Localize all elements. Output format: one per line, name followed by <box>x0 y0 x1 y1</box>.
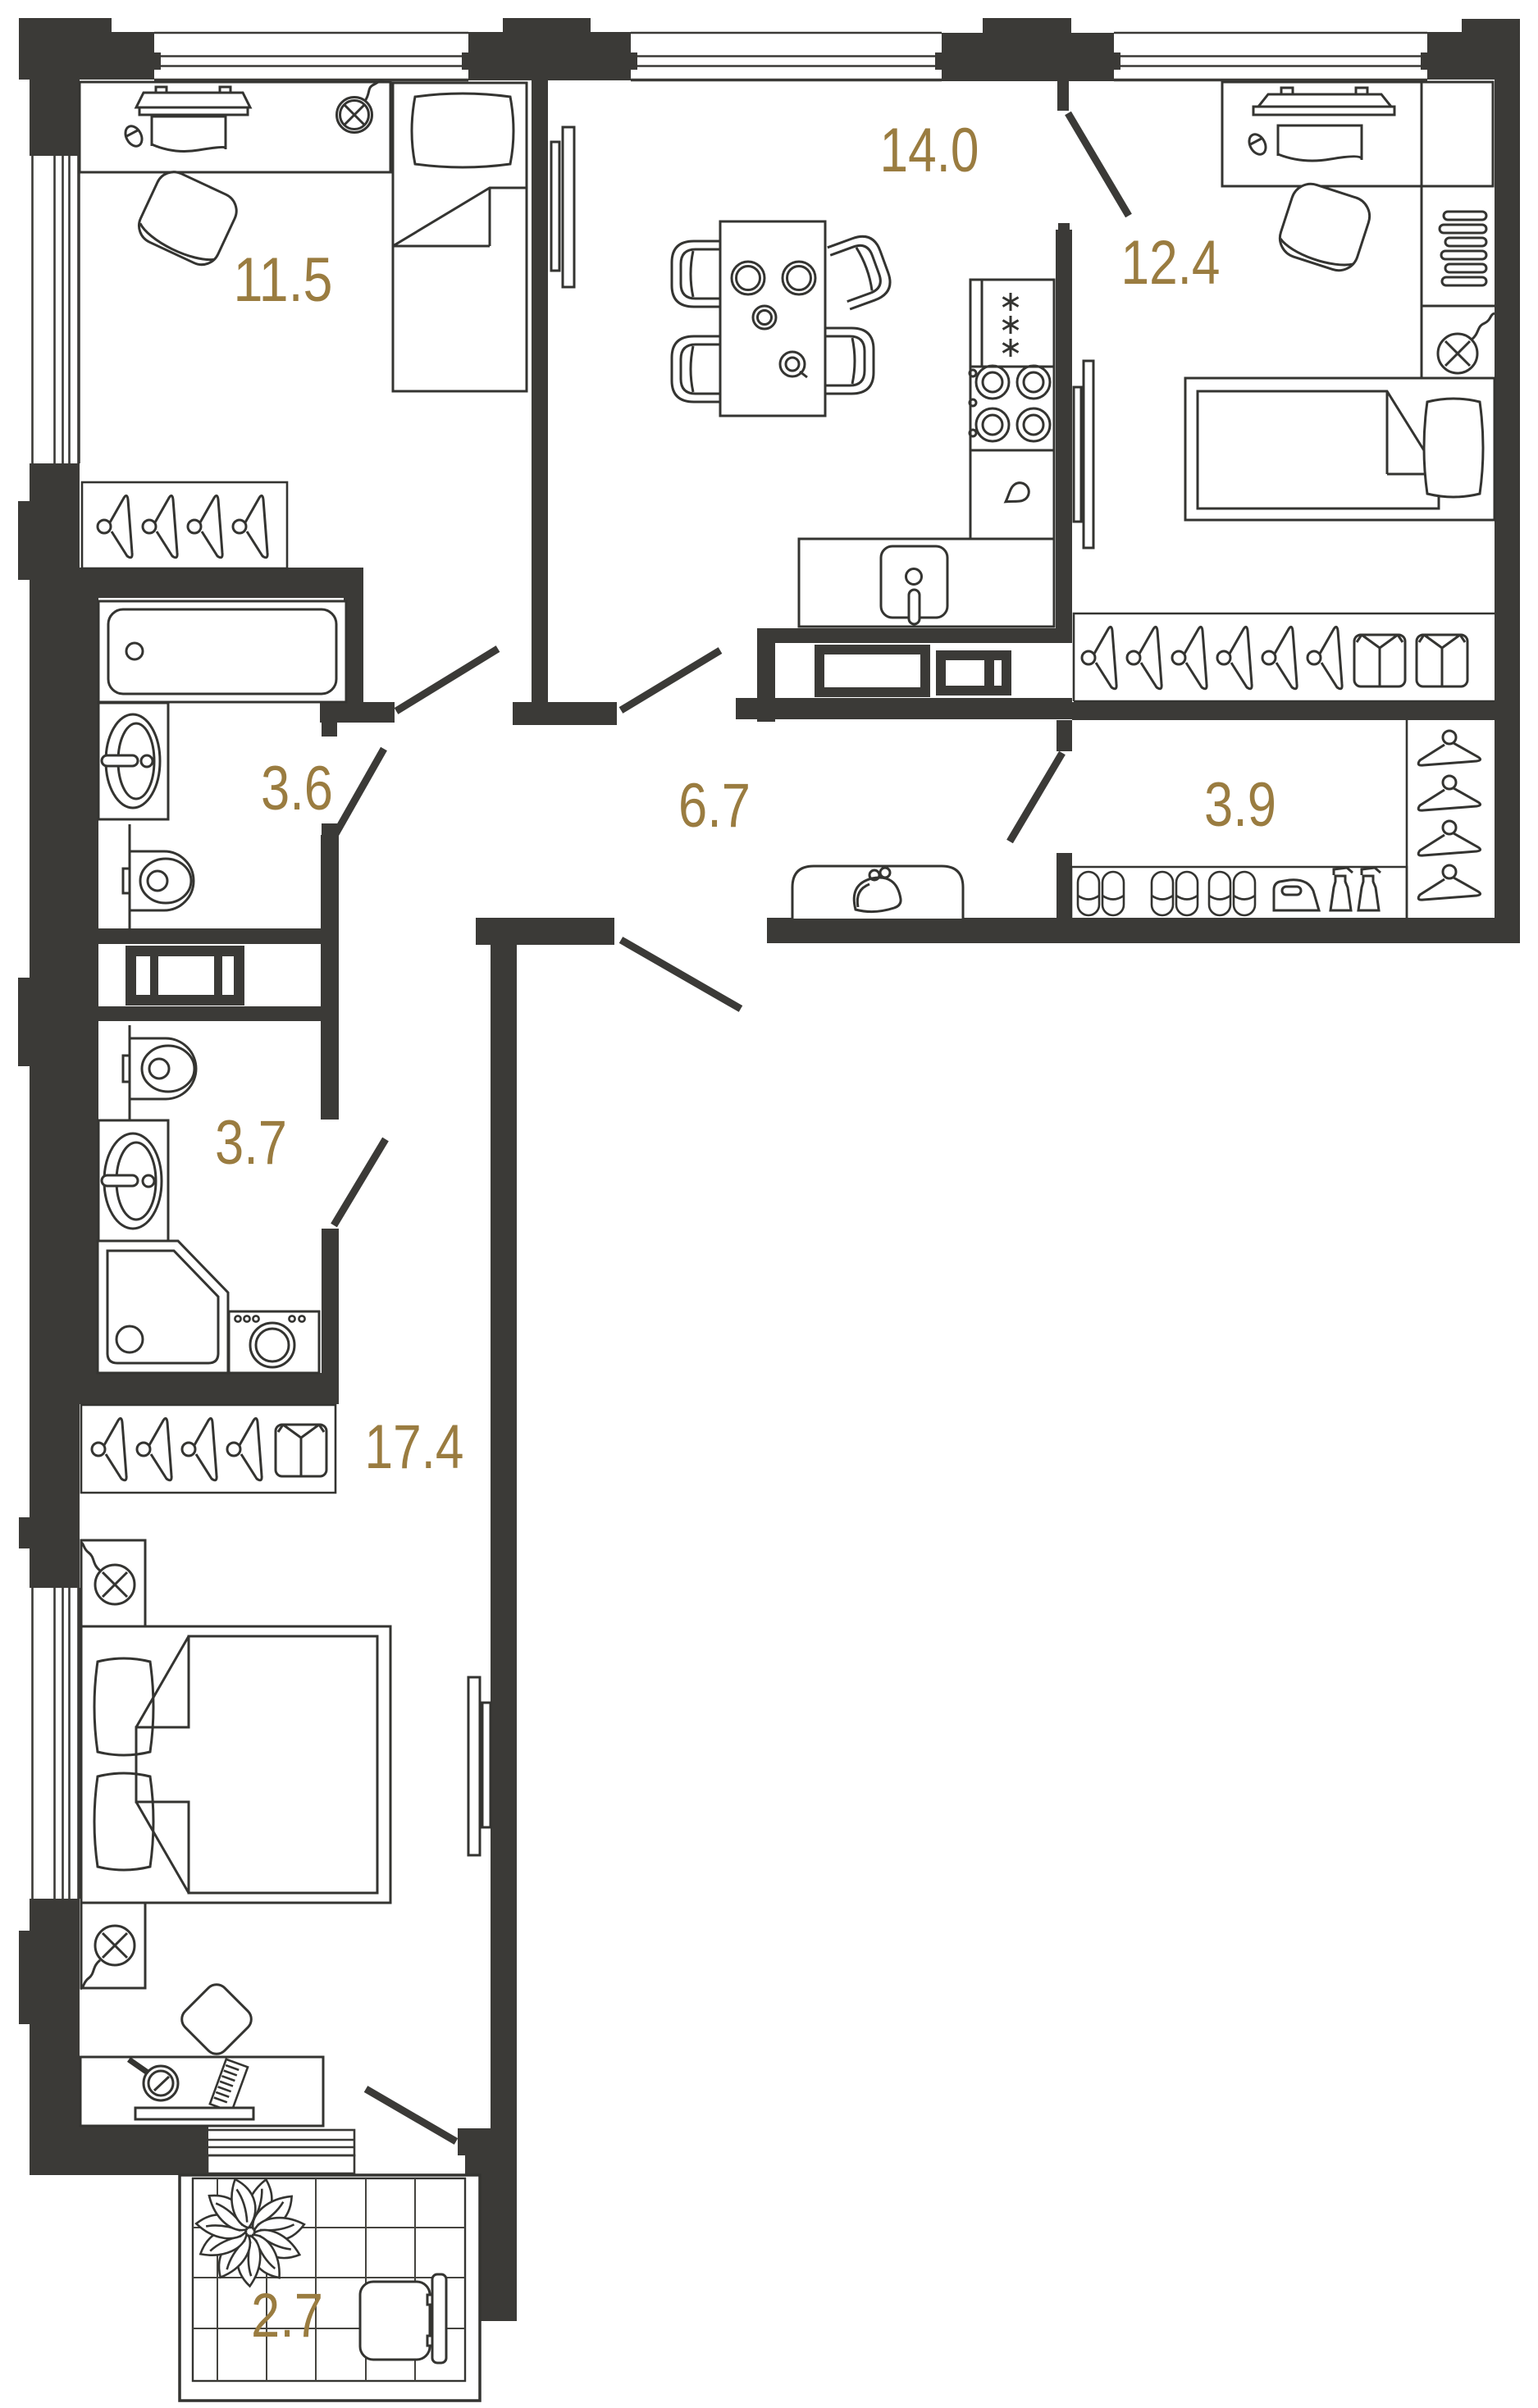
svg-text:6.7: 6.7 <box>678 771 751 841</box>
svg-text:17.4: 17.4 <box>365 1412 464 1482</box>
svg-text:2.7: 2.7 <box>251 2281 323 2351</box>
svg-text:3.9: 3.9 <box>1204 770 1276 840</box>
svg-text:3.6: 3.6 <box>261 754 333 823</box>
svg-text:3.7: 3.7 <box>215 1108 287 1178</box>
svg-text:12.4: 12.4 <box>1121 228 1221 298</box>
svg-text:11.5: 11.5 <box>234 245 333 315</box>
svg-text:14.0: 14.0 <box>880 116 979 185</box>
